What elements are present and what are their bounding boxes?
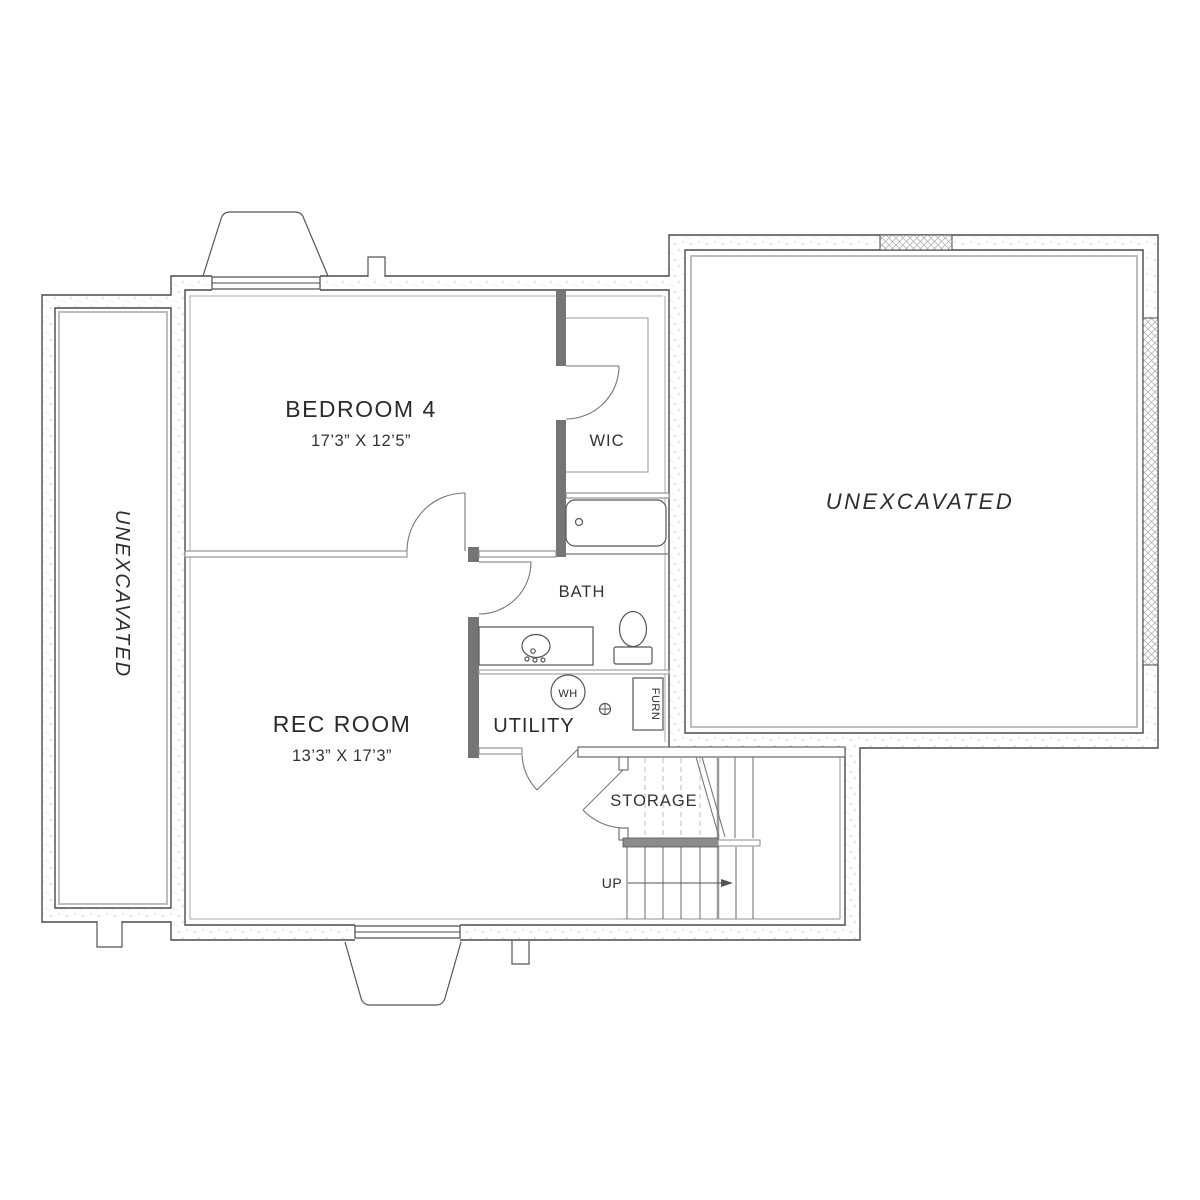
tub-faucet	[576, 519, 583, 526]
stair-top-wall	[578, 747, 845, 757]
storage-label: STORAGE	[610, 792, 697, 810]
unexcavated-left-label: UNEXCAVATED	[111, 510, 133, 678]
bedroom-window	[212, 274, 320, 292]
up-arrow-head	[721, 879, 733, 887]
staircase	[623, 757, 760, 919]
crosshatch-wall-top	[880, 235, 952, 250]
foundation-bump-left	[97, 921, 122, 947]
foundation-bump-bottom	[512, 941, 529, 964]
crosshatch-wall-right	[1143, 318, 1158, 665]
toilet-bowl	[620, 612, 647, 647]
furnace-label: FURN	[649, 688, 661, 721]
bath-door	[479, 562, 531, 614]
foundation-bump-top	[368, 257, 385, 277]
vanity-sink	[522, 635, 550, 658]
rec-room-label: REC ROOM	[273, 711, 412, 737]
rec-room-window	[355, 923, 460, 942]
bedroom4-dimensions: 17’3” X 12’5”	[311, 432, 411, 450]
utility-label: UTILITY	[493, 715, 574, 737]
toilet-tank	[614, 647, 652, 664]
floor-plan-drawing: BEDROOM 4 17’3” X 12’5” WIC BATH REC ROO…	[0, 0, 1200, 1200]
stair-rail-bar	[623, 838, 718, 847]
floor-drain	[600, 704, 611, 715]
floor-plan: BEDROOM 4 17’3” X 12’5” WIC BATH REC ROO…	[0, 0, 1200, 1200]
rec-room-dimensions: 13’3” X 17’3”	[292, 747, 392, 765]
stair-rail-bar-end	[718, 840, 760, 846]
window-well-bottom	[345, 942, 461, 1005]
bedroom-door	[407, 493, 465, 551]
inset-line-main	[190, 296, 663, 919]
unexcavated-right-label: UNEXCAVATED	[826, 489, 1014, 514]
wic-label: WIC	[589, 432, 624, 450]
utility-door	[522, 749, 578, 790]
window-well-top	[203, 212, 328, 276]
bath-label: BATH	[559, 583, 606, 601]
up-label: UP	[602, 875, 622, 891]
water-heater-label: WH	[558, 688, 577, 700]
wic-door	[566, 366, 619, 419]
bedroom4-label: BEDROOM 4	[285, 396, 437, 422]
sink-drain	[531, 649, 535, 653]
